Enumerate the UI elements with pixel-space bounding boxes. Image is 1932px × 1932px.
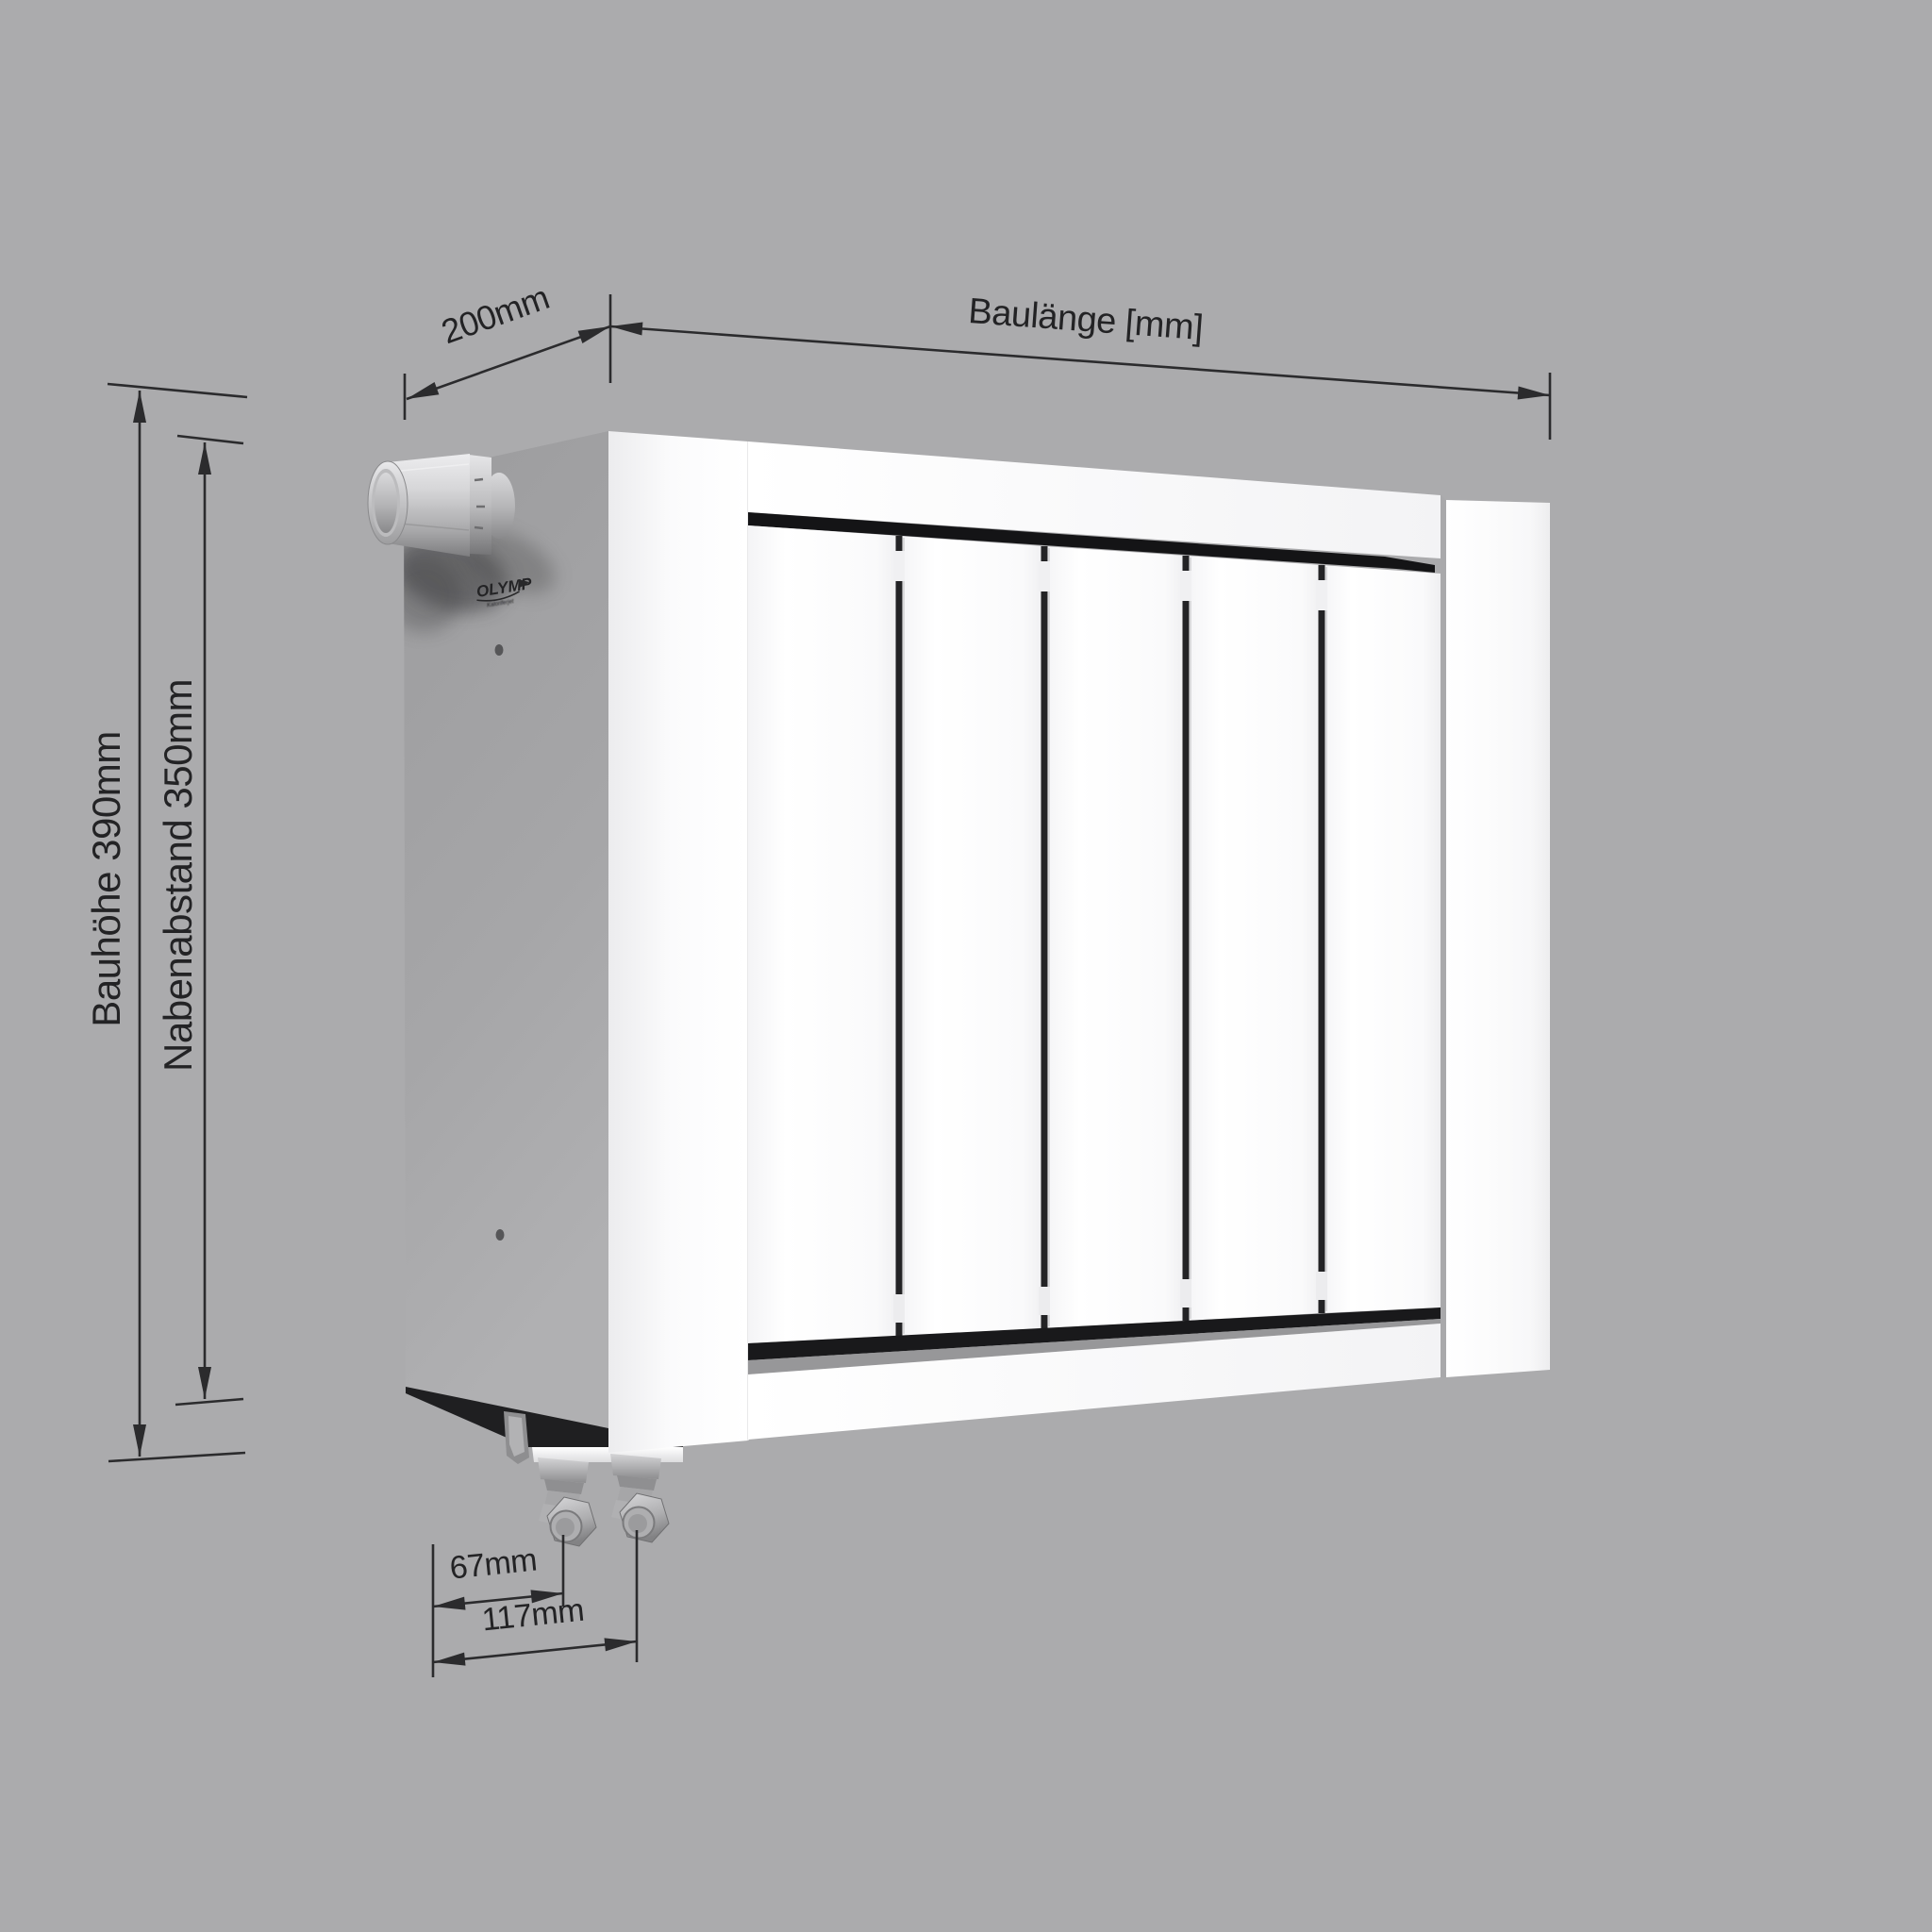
radiator-dimension-drawing: OLYMP Kaloriferjet (0, 0, 1932, 1932)
front-panel-4 (1186, 556, 1322, 1321)
front-panel-1 (748, 525, 899, 1343)
radiator-front-face (608, 431, 1441, 1453)
dimension-label-hub-distance: Nabenabstand 350mm (156, 679, 200, 1072)
front-left-column (608, 431, 748, 1453)
diagram-canvas: OLYMP Kaloriferjet (0, 0, 1932, 1932)
radiator-end-strip (1446, 500, 1550, 1377)
dimension-label-height: Bauhöhe 390mm (84, 731, 128, 1026)
front-panel-5 (1322, 565, 1441, 1313)
front-panel-2 (899, 536, 1044, 1336)
front-panel-3 (1044, 546, 1186, 1328)
side-hole-top (495, 644, 504, 656)
end-strip-gap (1441, 495, 1446, 1377)
side-hole-bottom (496, 1229, 505, 1241)
